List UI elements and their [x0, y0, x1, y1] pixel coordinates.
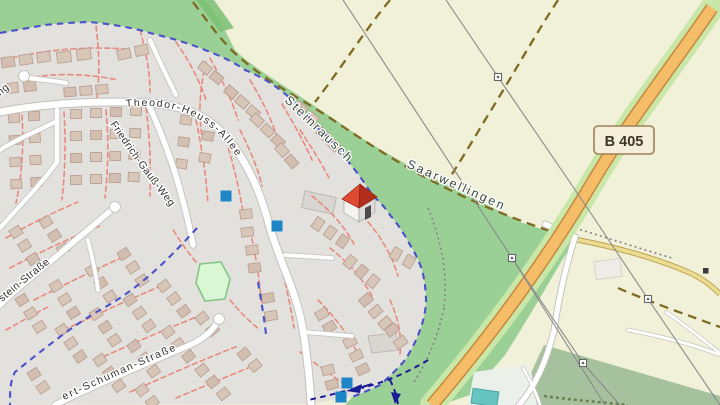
- cul-de-sac: [19, 71, 30, 82]
- power-tower-icon: [495, 74, 502, 81]
- power-tower-icon: [509, 255, 516, 262]
- map-canvas[interactable]: Theodor-Heuss-Allee Friedrich-Gauß-Weg s…: [0, 0, 720, 405]
- building: [70, 109, 81, 118]
- building: [91, 109, 102, 118]
- building: [10, 179, 22, 189]
- building: [199, 152, 211, 163]
- building: [70, 175, 81, 184]
- building: [264, 310, 277, 321]
- building: [70, 153, 81, 162]
- power-tower-icon: [580, 360, 587, 367]
- building: [240, 209, 253, 219]
- building: [56, 51, 71, 64]
- cul-de-sac: [214, 314, 225, 325]
- building: [80, 86, 93, 96]
- map-viewport[interactable]: Theodor-Heuss-Allee Friedrich-Gauß-Weg s…: [0, 0, 720, 405]
- building: [241, 227, 254, 237]
- building: [1, 56, 15, 68]
- building: [91, 153, 102, 162]
- route-badge-b405: B 405: [594, 126, 654, 154]
- blue-square-marker[interactable]: [272, 221, 283, 232]
- building: [91, 175, 102, 184]
- building: [96, 84, 109, 94]
- blue-square-marker[interactable]: [336, 392, 347, 403]
- building: [36, 51, 50, 63]
- building: [117, 48, 132, 60]
- building: [110, 151, 121, 160]
- building: [76, 48, 91, 61]
- building: [70, 131, 81, 140]
- building: [23, 81, 36, 92]
- building: [134, 44, 149, 56]
- parking-area: [594, 258, 622, 279]
- building: [128, 172, 139, 182]
- building: [109, 173, 120, 182]
- route-ref-text: B 405: [605, 134, 644, 150]
- building: [110, 107, 121, 116]
- building: [10, 157, 22, 167]
- building: [19, 54, 33, 66]
- building: [91, 131, 102, 140]
- building: [245, 245, 258, 256]
- building: [64, 87, 77, 97]
- building: [261, 293, 274, 304]
- building: [28, 111, 39, 121]
- power-tower-icon: [703, 268, 709, 274]
- blue-square-marker[interactable]: [221, 191, 232, 202]
- building: [129, 128, 140, 138]
- cul-de-sac: [110, 202, 121, 213]
- power-tower-icon: [645, 296, 652, 303]
- building: [248, 263, 261, 274]
- building: [178, 137, 190, 147]
- blue-square-marker[interactable]: [342, 378, 353, 389]
- building: [30, 155, 41, 165]
